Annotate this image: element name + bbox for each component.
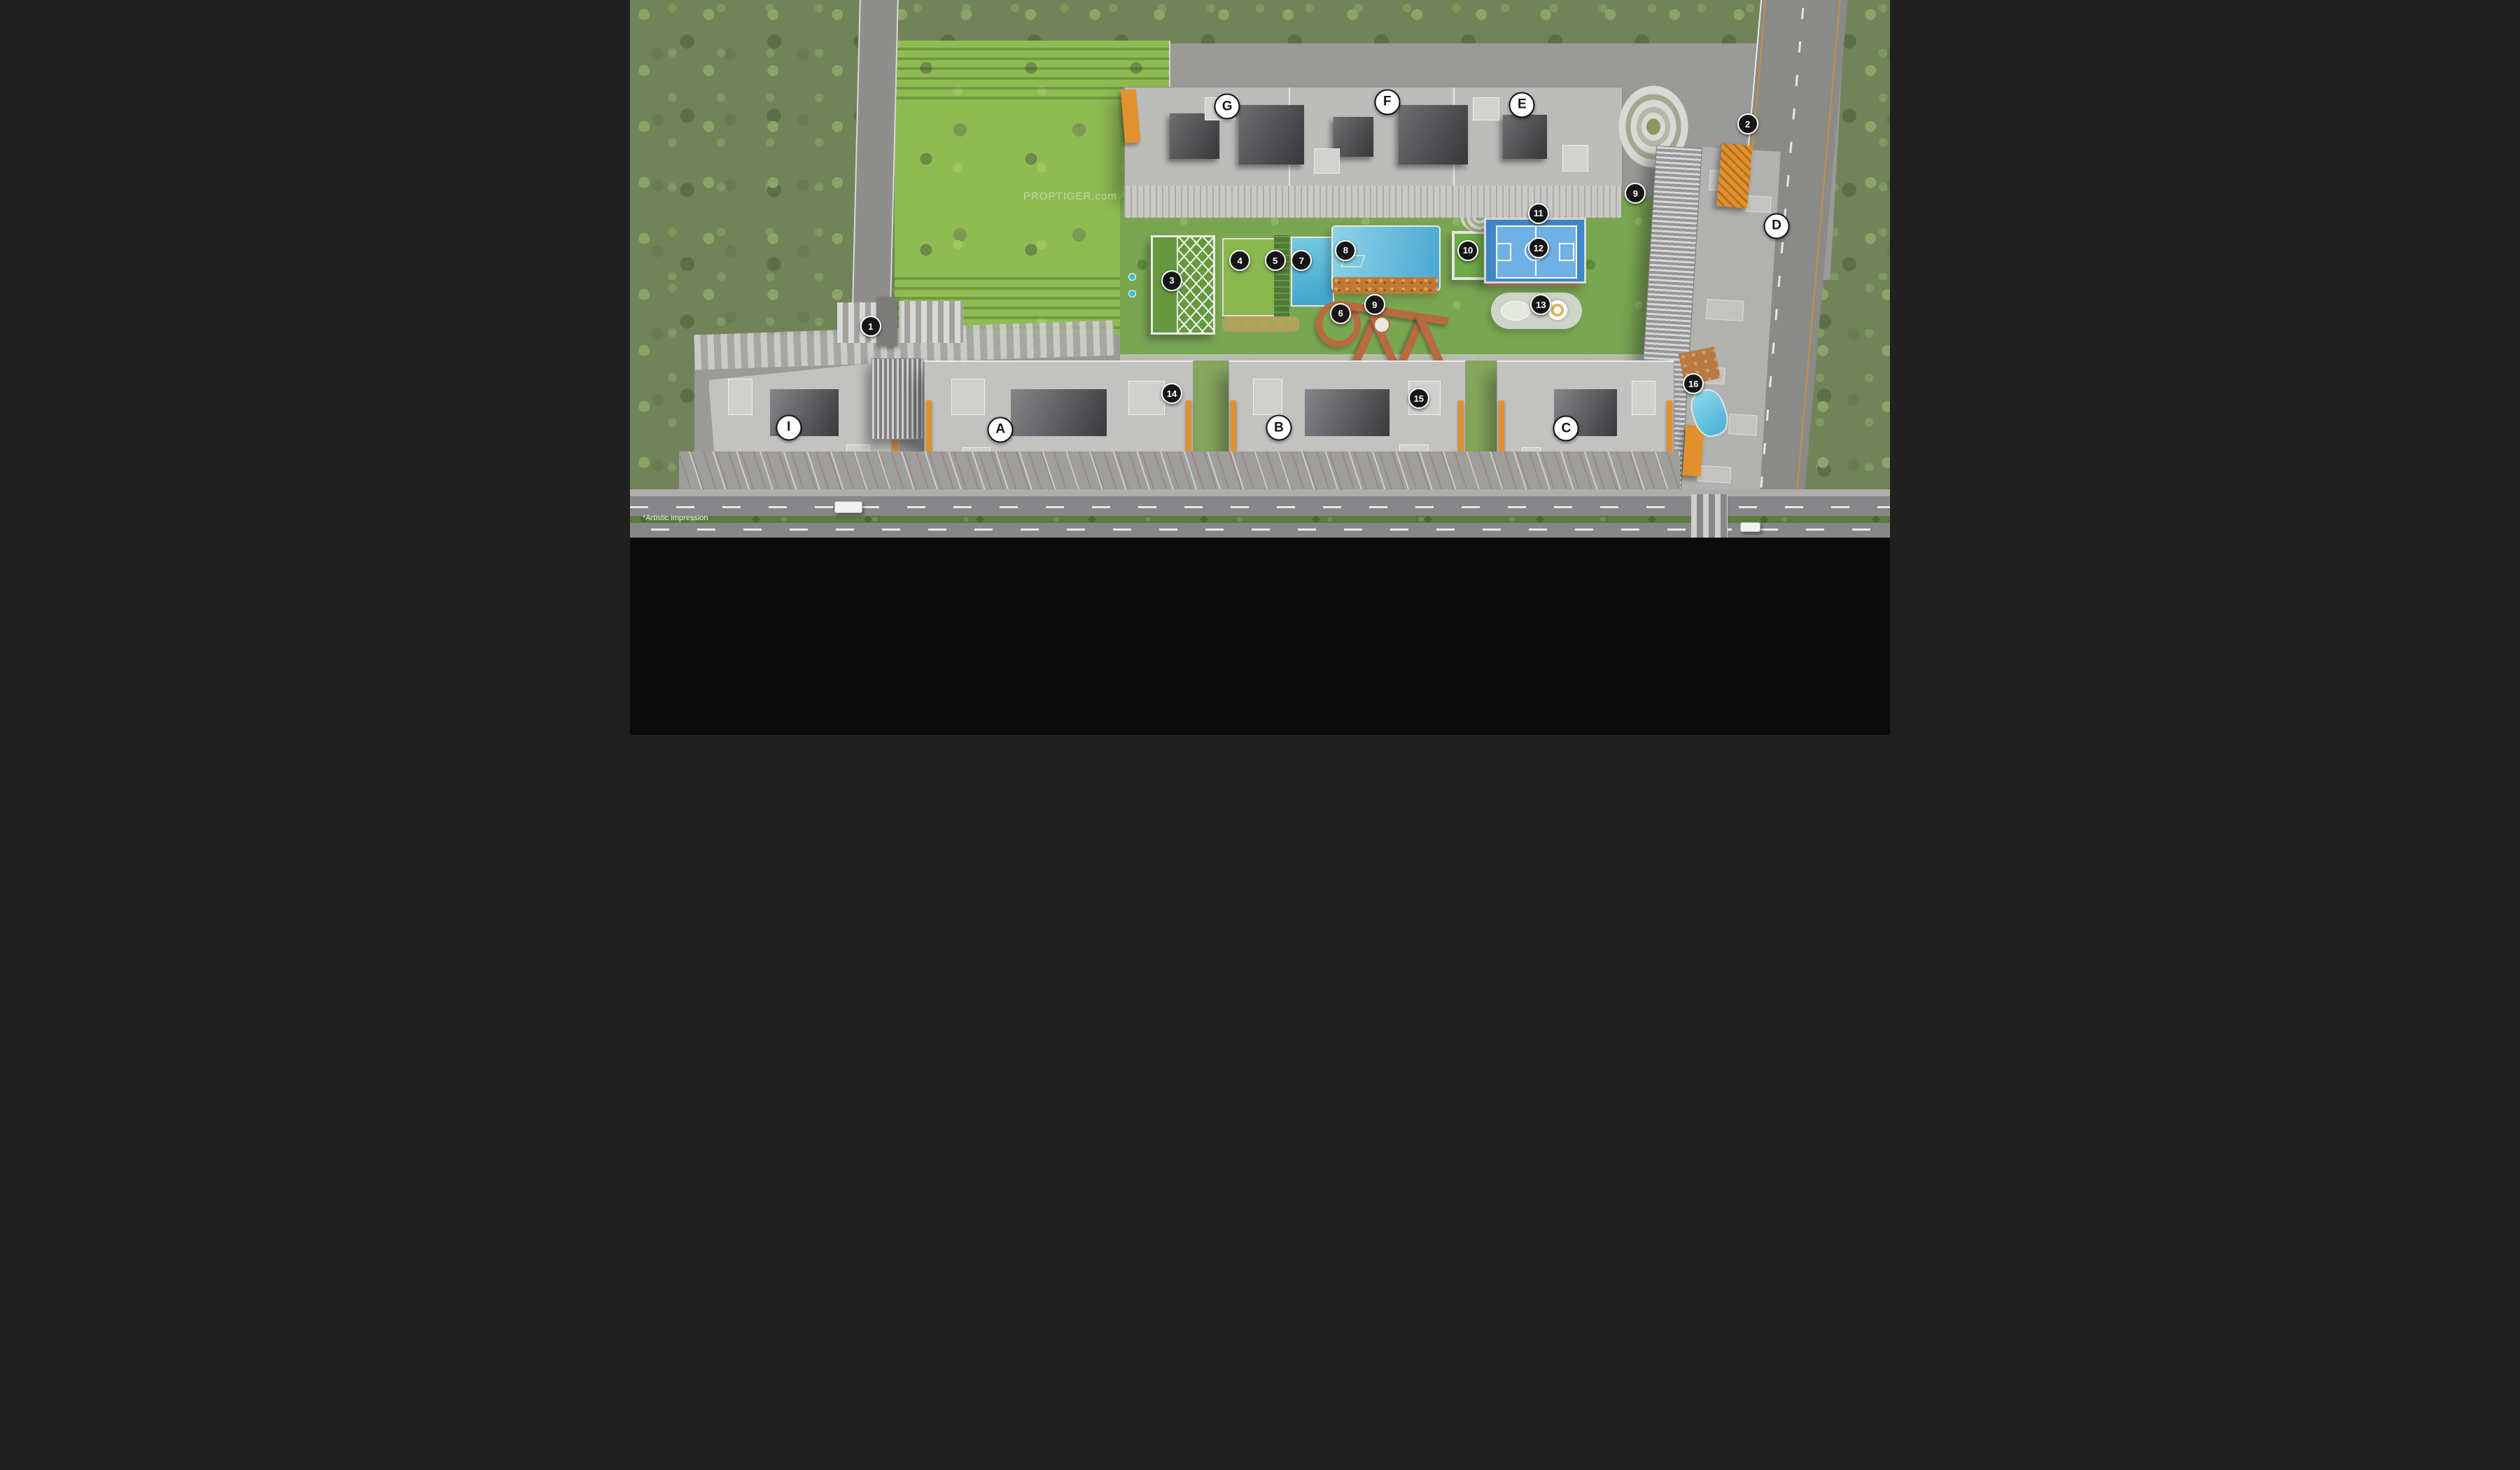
plan-marker-9: 9 xyxy=(1625,183,1646,204)
site-plan-page: PROPTIGER.com *Artistic impression 12345… xyxy=(630,0,1890,735)
artistic-impression-note: *Artistic impression xyxy=(643,514,708,522)
watermark: PROPTIGER.com xyxy=(1023,190,1117,202)
building-label-A: A xyxy=(988,416,1014,442)
plan-marker-10: 10 xyxy=(1457,240,1478,261)
building-label-E: E xyxy=(1509,92,1535,118)
plan-marker-3: 3 xyxy=(1161,270,1182,291)
legend-panel: LEGENDS 1Designer Entry Gate (West)2Desi… xyxy=(630,538,1890,735)
plan-marker-16: 16 xyxy=(1683,373,1704,394)
plan-marker-9: 9 xyxy=(1364,294,1385,315)
plan-marker-6: 6 xyxy=(1330,303,1351,324)
plan-marker-13: 13 xyxy=(1530,294,1551,315)
building-label-C: C xyxy=(1553,416,1579,442)
building-label-F: F xyxy=(1374,89,1400,115)
plan-markers-layer: 123456789910111213141516GFEDIABC xyxy=(630,0,1890,538)
plan-marker-7: 7 xyxy=(1291,250,1312,271)
plan-marker-5: 5 xyxy=(1265,250,1286,271)
plan-marker-11: 11 xyxy=(1528,203,1549,224)
building-label-I: I xyxy=(776,414,801,440)
plan-marker-1: 1 xyxy=(860,316,881,337)
master-plan-render: PROPTIGER.com *Artistic impression 12345… xyxy=(630,0,1890,538)
building-label-G: G xyxy=(1214,94,1240,120)
building-label-B: B xyxy=(1266,415,1292,441)
plan-marker-15: 15 xyxy=(1408,388,1429,409)
plan-marker-8: 8 xyxy=(1335,240,1356,261)
plan-marker-4: 4 xyxy=(1229,250,1250,271)
plan-marker-2: 2 xyxy=(1737,113,1758,134)
building-label-D: D xyxy=(1764,213,1790,239)
plan-marker-14: 14 xyxy=(1161,383,1182,404)
plan-marker-12: 12 xyxy=(1528,237,1549,258)
